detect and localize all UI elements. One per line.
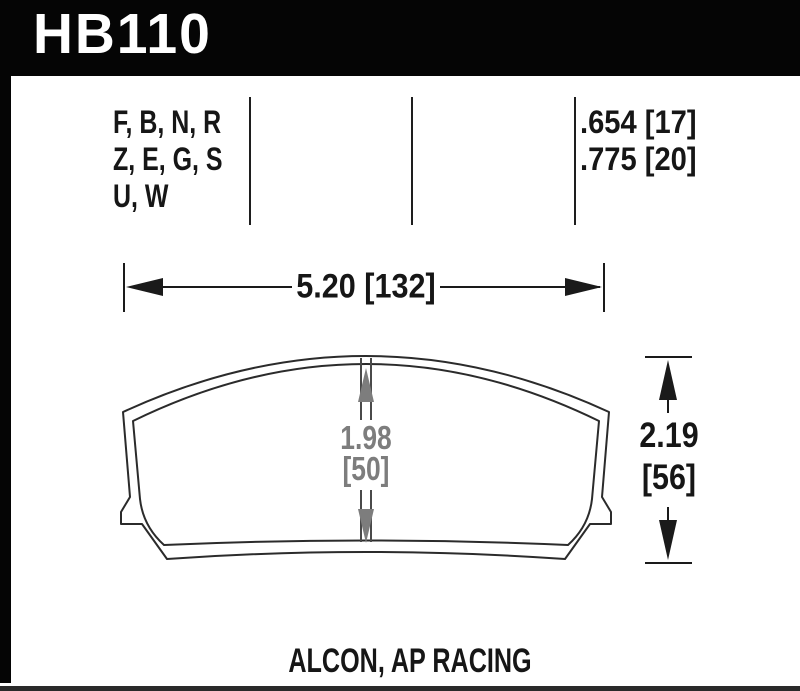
center-height-mm: [50] (340, 453, 391, 484)
spec-table-dividers (250, 97, 575, 225)
pad-thickness-line: .654 [17] (580, 104, 697, 141)
overall-height-mm: [56] (639, 457, 698, 499)
compound-codes-line: U, W (113, 178, 223, 215)
compound-codes: F, B, N, R Z, E, G, S U, W (113, 104, 223, 215)
pad-thickness-line: .775 [20] (580, 141, 697, 178)
compound-codes-line: Z, E, G, S (113, 141, 223, 178)
center-height-dimension-label: 1.98 [50] (340, 422, 391, 484)
catalog-page: HB110 (0, 0, 800, 691)
center-height-value: 1.98 (340, 422, 391, 453)
caliper-applications: ALCON, AP RACING (288, 642, 531, 680)
width-dimension-label: 5.20 [132] (296, 268, 436, 307)
pad-thickness-values: .654 [17] .775 [20] (580, 104, 697, 178)
overall-height-dimension-label: 2.19 [56] (639, 415, 698, 499)
compound-codes-line: F, B, N, R (113, 104, 223, 141)
overall-height-value: 2.19 (639, 415, 698, 457)
